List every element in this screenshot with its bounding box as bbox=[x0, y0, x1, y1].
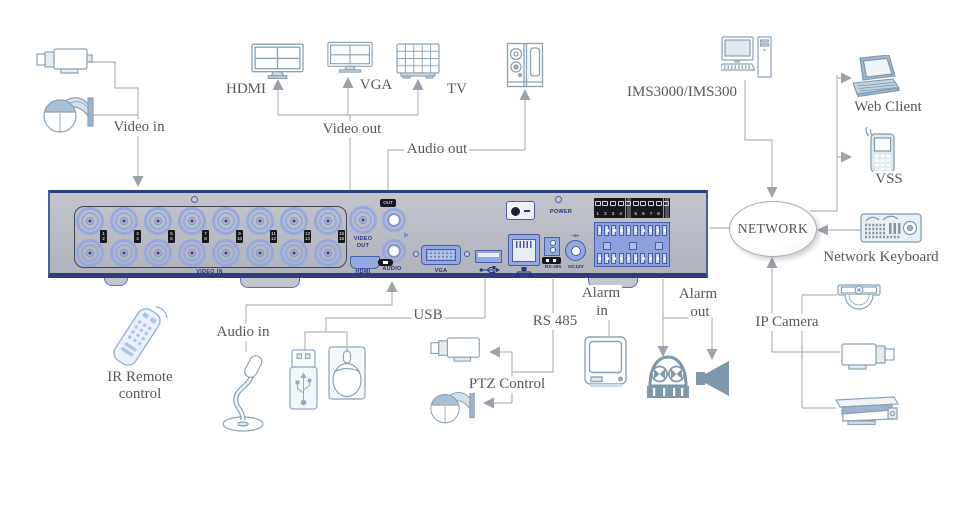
vga-screw bbox=[413, 251, 419, 257]
dc-polarity-mark: −⊙+ bbox=[560, 233, 590, 240]
ethernet-port bbox=[508, 234, 540, 266]
panel-screw bbox=[555, 196, 562, 203]
bnc-pair-number-tag: 12 bbox=[100, 230, 107, 243]
dc12v-port-label: DC12V bbox=[558, 265, 594, 272]
alarm-terminal-number: 6 bbox=[640, 198, 648, 218]
alarm-terminal-number: 3 bbox=[609, 198, 617, 218]
alarm-terminal-row-top bbox=[597, 225, 667, 236]
bnc-video-in-connector bbox=[110, 239, 138, 267]
bnc-video-in-connector bbox=[246, 239, 274, 267]
network-label: NETWORK bbox=[738, 221, 808, 237]
terminal-mount-hole bbox=[655, 242, 663, 250]
bnc-pair-number-tag: 910 bbox=[236, 230, 243, 243]
power-label: POWER bbox=[544, 209, 578, 216]
alarm-terminal-post bbox=[655, 225, 660, 236]
network-keyboard-label: Network Keyboard bbox=[821, 249, 940, 266]
alarm-terminal-post bbox=[633, 225, 638, 236]
alarm-sensor-monitor-icon bbox=[583, 335, 629, 393]
ptz-bullet-camera-icon bbox=[430, 335, 486, 366]
bnc-pair-number-tag: 1112 bbox=[270, 230, 277, 243]
alarm-terminal-post bbox=[633, 253, 638, 264]
alarm-out-label-1: Alarm bbox=[677, 286, 719, 303]
alarm-terminal-number: 2 bbox=[602, 198, 610, 218]
alarm-terminal-post bbox=[662, 225, 667, 236]
vga-monitor-icon bbox=[327, 41, 373, 74]
bnc-pair-number-tag: 1314 bbox=[304, 230, 311, 243]
alarm-terminal-post bbox=[626, 253, 631, 264]
alarm-terminal-post bbox=[640, 253, 645, 264]
bnc-pair-number-tag: 34 bbox=[134, 230, 141, 243]
alarm-in-label-1: Alarm bbox=[580, 285, 622, 302]
usb-port bbox=[475, 250, 502, 263]
dc-power-jack bbox=[565, 240, 586, 261]
hdmi-monitor-icon bbox=[251, 43, 304, 80]
alarm-terminal-block bbox=[594, 222, 670, 267]
alarm-terminal-post bbox=[611, 225, 616, 236]
alarm-terminal-post bbox=[619, 225, 624, 236]
alarm-terminal-row-bottom bbox=[597, 253, 667, 264]
vss-label: VSS bbox=[873, 171, 905, 188]
alarm-terminal-symbol bbox=[624, 198, 632, 218]
ir-remote-label: IR Remotecontrol bbox=[105, 369, 174, 404]
ip-bullet-camera-icon bbox=[840, 341, 896, 375]
audio-tag bbox=[378, 259, 393, 266]
vga-screw bbox=[464, 251, 470, 257]
bnc-video-in-connector bbox=[76, 239, 104, 267]
bnc-video-in-connector bbox=[144, 239, 172, 267]
power-switch bbox=[506, 201, 535, 220]
audio-in-label: Audio in bbox=[215, 324, 272, 341]
alarm-terminal-number: 1 bbox=[594, 198, 602, 218]
tv-monitor-icon bbox=[396, 43, 440, 80]
alarm-terminal-post bbox=[648, 225, 653, 236]
microphone-icon bbox=[220, 347, 266, 433]
audio-out-label: Audio out bbox=[405, 141, 469, 158]
bnc-video-in-connector bbox=[314, 239, 342, 267]
alarm-terminal-post bbox=[597, 253, 602, 264]
video-in-label: Video in bbox=[111, 119, 166, 136]
alarm-terminal-number: 7 bbox=[647, 198, 655, 218]
alarm-horn-icon bbox=[695, 356, 733, 400]
alarm-terminal-post bbox=[655, 253, 660, 264]
speaker-icon bbox=[506, 42, 544, 90]
usb-flash-drive-icon bbox=[288, 349, 320, 411]
audio-port-label: AUDIO bbox=[372, 266, 412, 273]
dvr-connection-diagram: VIDEO IN VIDEOOUT HDMI OUT AUDIO VGA bbox=[0, 0, 977, 507]
alarm-terminal-number: 5 bbox=[632, 198, 640, 218]
vga-label: VGA bbox=[358, 77, 395, 94]
bullet-camera-icon bbox=[36, 46, 94, 78]
network-node: NETWORK bbox=[729, 201, 817, 257]
network-keyboard-icon bbox=[860, 209, 922, 245]
panel-screw bbox=[191, 196, 198, 203]
alarm-in-label-2: in bbox=[594, 303, 610, 320]
video-out-bnc-connector bbox=[349, 206, 377, 234]
ip-housing-camera-icon bbox=[835, 394, 902, 432]
vga-port-label: VGA bbox=[421, 268, 461, 275]
audio-out-tag: OUT bbox=[380, 199, 396, 207]
rs485-terminal bbox=[544, 237, 560, 256]
ip-camera-label: IP Camera bbox=[753, 314, 820, 331]
alarm-terminal-post bbox=[662, 253, 667, 264]
tv-label: TV bbox=[445, 81, 469, 98]
mouse-icon bbox=[328, 346, 366, 400]
ethernet-symbol-icon bbox=[515, 267, 533, 277]
video-out-label: Video out bbox=[321, 121, 384, 138]
ims-software-label: IMS3000/IMS300 bbox=[625, 84, 739, 101]
ptz-control-label: PTZ Control bbox=[467, 376, 547, 393]
bnc-pair-number-tag: 56 bbox=[168, 230, 175, 243]
video-out-port-label: VIDEOOUT bbox=[345, 236, 381, 249]
alarm-terminal-number: 4 bbox=[617, 198, 625, 218]
alarm-terminal-post bbox=[604, 253, 609, 264]
ip-dome-camera-icon bbox=[836, 282, 882, 320]
bnc-video-in-connector bbox=[280, 239, 308, 267]
bnc-pair-number-tag: 78 bbox=[202, 230, 209, 243]
vga-port bbox=[421, 245, 461, 265]
alarm-terminal-symbol bbox=[662, 198, 670, 218]
alarm-terminal-post bbox=[604, 225, 609, 236]
rs485-label: RS 485 bbox=[531, 313, 580, 330]
dvr-rear-panel: VIDEO IN VIDEOOUT HDMI OUT AUDIO VGA bbox=[48, 190, 708, 278]
web-client-label: Web Client bbox=[852, 99, 924, 116]
usb-label: USB bbox=[411, 307, 444, 324]
hdmi-label: HDMI bbox=[224, 81, 268, 98]
ptz-dome-camera-icon bbox=[43, 92, 95, 134]
desktop-computer-icon bbox=[721, 36, 773, 82]
rs485-tag bbox=[542, 257, 561, 264]
alarm-terminal-post bbox=[640, 225, 645, 236]
alarm-io-labels: 12345678 bbox=[594, 198, 670, 218]
video-in-port-label: VIDEO IN bbox=[74, 269, 345, 276]
alarm-terminal-post bbox=[619, 253, 624, 264]
alarm-terminal-number: 8 bbox=[655, 198, 663, 218]
alarm-terminal-post bbox=[626, 225, 631, 236]
laptop-icon bbox=[850, 55, 900, 97]
ir-remote-icon bbox=[103, 297, 175, 375]
alarm-beacon-icon bbox=[643, 352, 693, 400]
usb-symbol-icon bbox=[479, 265, 501, 275]
audio-out-rca-connector bbox=[382, 208, 406, 232]
terminal-mount-hole bbox=[629, 242, 637, 250]
bnc-video-in-connector bbox=[212, 239, 240, 267]
bnc-video-in-connector bbox=[178, 239, 206, 267]
alarm-out-label-2: out bbox=[688, 304, 711, 321]
alarm-terminal-post bbox=[597, 225, 602, 236]
alarm-terminal-post bbox=[611, 253, 616, 264]
audio-in-marker bbox=[404, 232, 409, 238]
mobile-phone-icon bbox=[861, 126, 897, 174]
alarm-terminal-post bbox=[648, 253, 653, 264]
terminal-mount-hole bbox=[603, 242, 611, 250]
bnc-pair-number-tag: 1516 bbox=[338, 230, 345, 243]
